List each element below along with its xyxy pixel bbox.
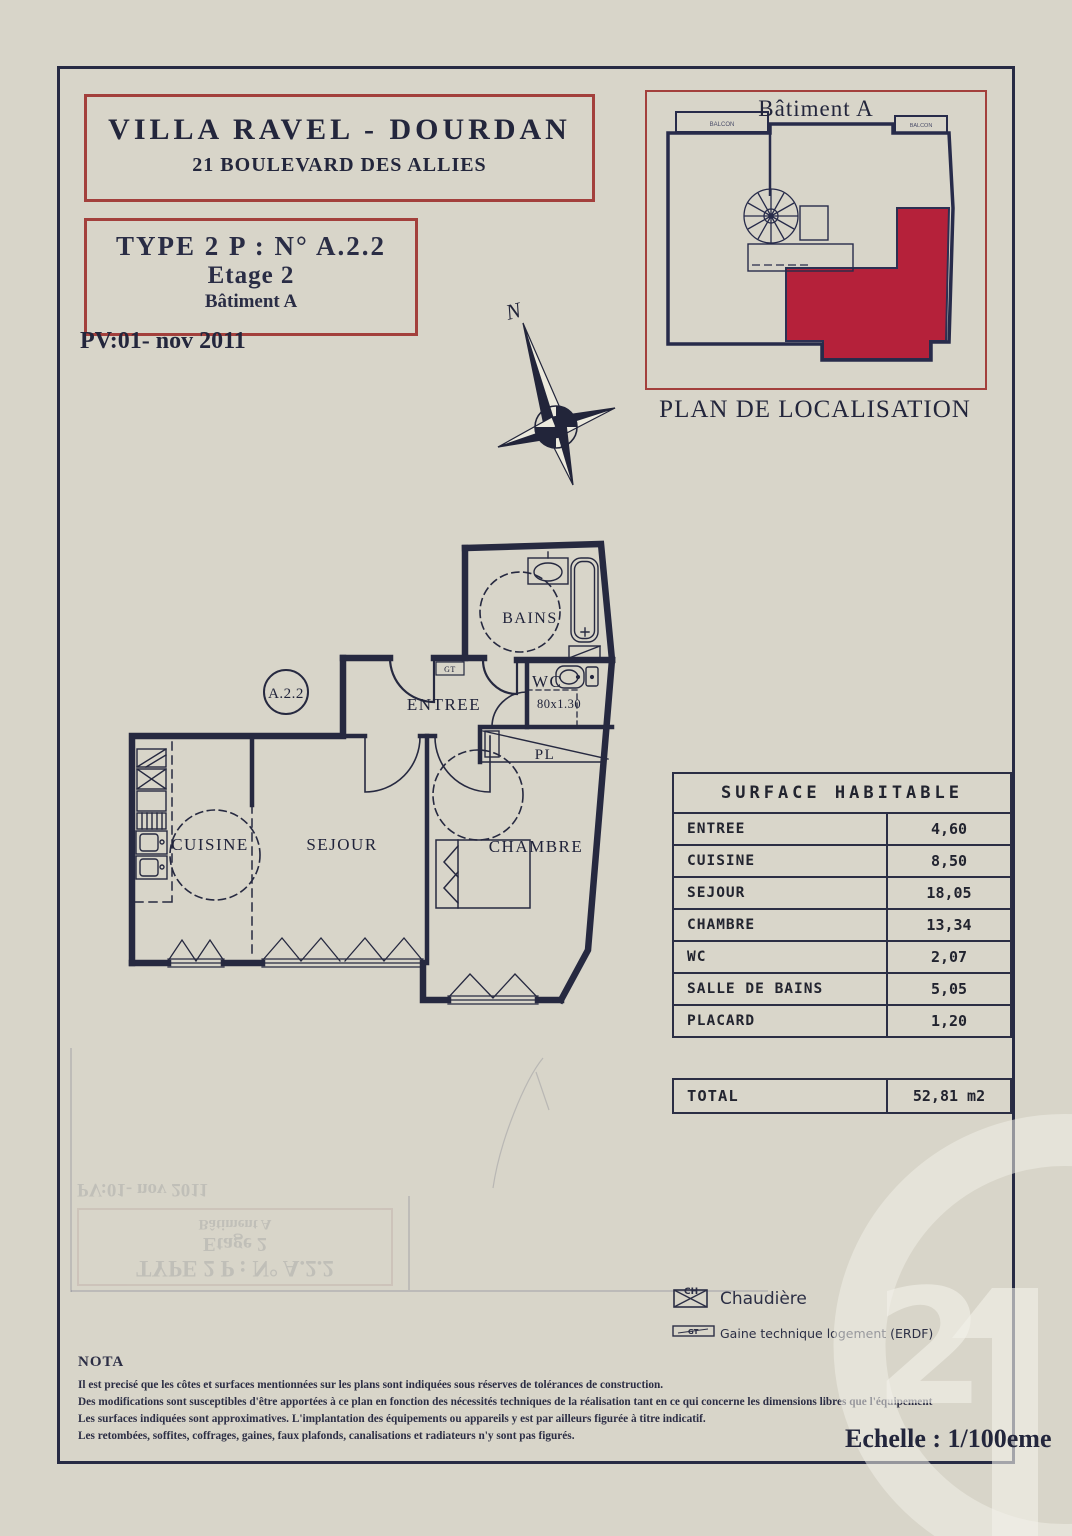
localisation-caption: PLAN DE LOCALISATION [630,396,1000,424]
project-address: 21 BOULEVARD DES ALLIES [87,154,592,177]
surface-table-title: SURFACE HABITABLE [674,774,1010,814]
scanned-floor-plan-page: { "colors": { "ink": "#262940", "red_bor… [0,0,1072,1536]
table-row: SEJOUR 18,05 [674,878,1010,910]
legend-item-gaine: GT Gaine technique logement (ERDF) [672,1323,1002,1343]
table-row: SALLE DE BAINS 5,05 [674,974,1010,1006]
row-value: 8,50 [888,846,1010,876]
nota-title: NOTA [78,1354,1008,1371]
localisation-box: Bâtiment A [645,90,987,390]
pv-date: PV:01- nov 2011 [80,328,246,355]
project-title: VILLA RAVEL - DOURDAN [87,113,592,147]
table-row: WC 2,07 [674,942,1010,974]
row-label: ENTREE [674,814,888,844]
nota-line: Des modifications sont susceptibles d'êt… [78,1394,1008,1411]
row-value: 5,05 [888,974,1010,1004]
unit-floor: Etage 2 [87,262,415,291]
row-value: 13,34 [888,910,1010,940]
legend: CH Chaudière GT Gaine technique logement… [672,1284,1002,1352]
chaudiere-icon: CH [672,1284,720,1314]
gaine-label: Gaine technique logement (ERDF) [720,1326,933,1341]
chaudiere-label: Chaudière [720,1289,807,1309]
total-value: 52,81 m2 [888,1080,1010,1112]
gaine-technique-icon: GT [672,1323,720,1343]
row-value: 18,05 [888,878,1010,908]
unit-type: TYPE 2 P : N° A.2.2 [87,231,415,262]
row-label: PLACARD [674,1006,888,1036]
table-row: PLACARD 1,20 [674,1006,1010,1036]
row-label: CUISINE [674,846,888,876]
table-row: CHAMBRE 13,34 [674,910,1010,942]
row-value: 2,07 [888,942,1010,972]
svg-text:GT: GT [688,1328,699,1336]
unit-building: Bâtiment A [87,291,415,314]
row-label: CHAMBRE [674,910,888,940]
row-label: SALLE DE BAINS [674,974,888,1004]
row-label: WC [674,942,888,972]
scale-note: Echelle : 1/100eme [845,1424,1052,1454]
table-row: ENTREE 4,60 [674,814,1010,846]
svg-text:CH: CH [684,1287,698,1297]
unit-info-box: TYPE 2 P : N° A.2.2 Etage 2 Bâtiment A [84,218,418,336]
row-value: 1,20 [888,1006,1010,1036]
total-box: TOTAL 52,81 m2 [672,1078,1012,1114]
total-label: TOTAL [674,1080,888,1112]
nota-line: Il est precisé que les côtes et surfaces… [78,1377,1008,1394]
row-label: SEJOUR [674,878,888,908]
total-row: TOTAL 52,81 m2 [674,1080,1010,1112]
row-value: 4,60 [888,814,1010,844]
localisation-building-title: Bâtiment A [647,96,985,122]
project-title-box: VILLA RAVEL - DOURDAN 21 BOULEVARD DES A… [84,94,595,202]
legend-item-chaudiere: CH Chaudière [672,1284,1002,1314]
table-row: CUISINE 8,50 [674,846,1010,878]
surface-table: SURFACE HABITABLE ENTREE 4,60 CUISINE 8,… [672,772,1012,1038]
